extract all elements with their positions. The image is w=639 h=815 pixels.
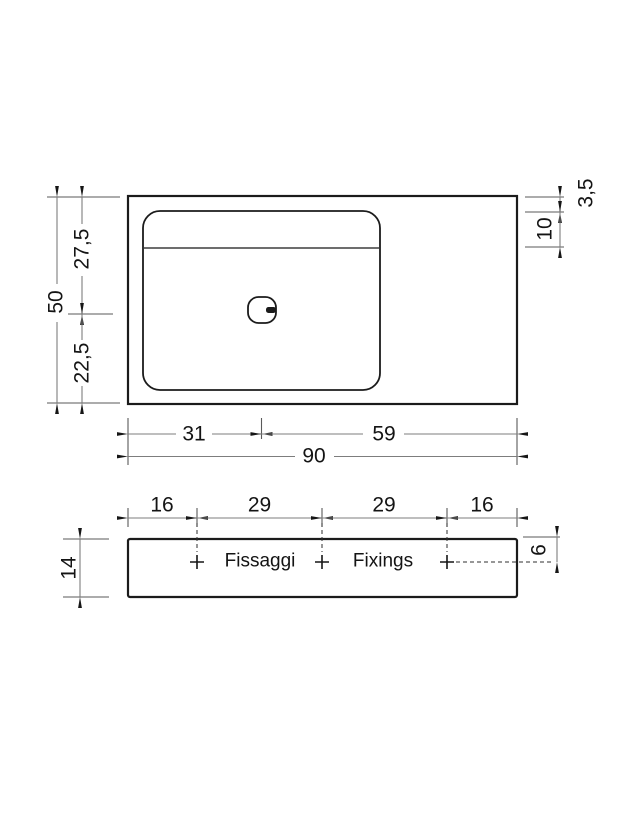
overflow-slot [266, 307, 276, 313]
dim-label-right-offset: 16 [470, 494, 493, 517]
plan-left-dimensions: 50 27,5 22,5 [45, 197, 121, 403]
dim-label-height: 14 [58, 556, 81, 580]
dim-label-left-offset: 16 [150, 494, 173, 517]
dim-label-right-spacing: 29 [372, 494, 395, 517]
plan-view [128, 196, 517, 404]
dim-label-deck-width: 10 [534, 217, 557, 240]
dim-label-left-spacing: 29 [248, 494, 271, 517]
plan-right-dimensions: 3,5 10 [525, 178, 598, 247]
dim-label-overall-width: 90 [302, 445, 325, 468]
fixing-cross-3 [440, 555, 454, 569]
dim-label-overall-depth: 50 [45, 290, 68, 313]
dim-label-basin-lower-depth: 22,5 [71, 343, 94, 384]
technical-drawing-sheet: 50 27,5 22,5 3,5 10 31 59 90 [0, 0, 639, 815]
dim-label-rim-thickness: 3,5 [575, 178, 598, 207]
fixings-label-italian: Fissaggi [225, 551, 296, 572]
dim-label-drain-from-right: 59 [372, 423, 395, 446]
front-view: 16 29 29 16 Fissaggi Fixings 6 14 [58, 494, 561, 598]
dim-label-drain-from-left: 31 [182, 423, 205, 446]
fixing-cross-1 [190, 555, 204, 569]
plan-bottom-dimensions: 31 59 90 [128, 418, 517, 468]
dim-label-fixing-inset: 6 [528, 544, 551, 556]
fixings-label-english: Fixings [353, 551, 413, 572]
dim-label-basin-upper-depth: 27,5 [71, 229, 94, 270]
countertop-outline [128, 196, 517, 404]
washbasin-drawing: 50 27,5 22,5 3,5 10 31 59 90 [0, 0, 639, 815]
basin-outline [143, 211, 380, 390]
fixing-cross-2 [315, 555, 329, 569]
